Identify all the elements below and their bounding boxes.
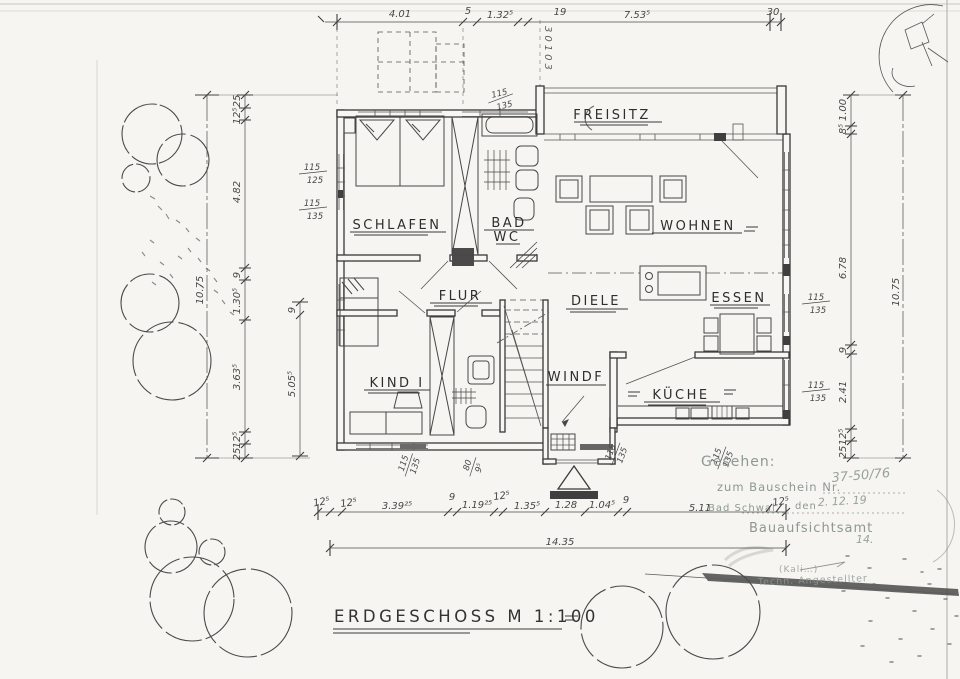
- dim-right-241: 2.41: [838, 381, 849, 403]
- dim-bot-125c: 12⁵: [493, 490, 511, 503]
- dim-top: 4.01 5 1.32⁵ 19 7.53⁵ 30 30103: [318, 6, 785, 73]
- room-label-wc: WC: [494, 230, 521, 245]
- frac-left-upper: 115 125: [299, 163, 327, 186]
- dim-right-1075: 10.75: [891, 278, 902, 307]
- dim-left2-5055: 5.05⁵: [287, 371, 298, 397]
- svg-text:115: 115: [808, 293, 824, 303]
- frac-right-essen: 115 135: [802, 293, 830, 316]
- stamp-den: den: [795, 501, 817, 512]
- svg-text:135: 135: [810, 306, 826, 316]
- shower-room-fixtures: [452, 356, 494, 428]
- frac-windf-door: 80 9⁵: [460, 454, 487, 480]
- dim-right-678: 6.78: [838, 257, 849, 279]
- dim-top-401: 4.01: [389, 9, 411, 20]
- dim-top-30: 30: [767, 7, 780, 18]
- svg-text:115: 115: [304, 199, 320, 209]
- dim-left-25a: 25: [232, 95, 243, 108]
- dim-right-9: 9: [838, 347, 849, 353]
- stamp-date: 2. 12. 19: [817, 493, 867, 509]
- stairs: [497, 300, 549, 432]
- floor-plan: FREISITZ SCHLAFEN BAD WC WOHNEN FLUR DIE…: [337, 20, 790, 499]
- dim-bot-128: 1.28: [555, 500, 577, 511]
- entrance-vestibule: [543, 396, 615, 499]
- stamp-gesehen: Gesehen:: [701, 454, 775, 470]
- room-label-kueche: KÜCHE: [652, 386, 709, 403]
- dim-left-25b: 25: [232, 448, 243, 461]
- pencil-scribble: [725, 548, 773, 566]
- svg-text:30103: 30103: [542, 26, 553, 73]
- dim-left-1305: 1.30⁵: [232, 288, 243, 314]
- edge-arc: [933, 490, 955, 562]
- room-label-kind: KIND I: [369, 376, 424, 391]
- dim-left2-9: 9: [287, 307, 298, 313]
- floor-plan-canvas: FREISITZ SCHLAFEN BAD WC WOHNEN FLUR DIE…: [0, 0, 960, 679]
- fireplace-sideboard: [640, 266, 706, 300]
- dim-bot-1355: 1.35⁵: [514, 501, 540, 512]
- dim-right-25: 25: [838, 446, 849, 459]
- dim-left-chain2: 9 5.05⁵: [287, 298, 308, 460]
- dim-right-85: 8⁵: [838, 124, 849, 134]
- dim-bottom-overall: 14.35: [326, 537, 790, 556]
- shrub-dashes: [142, 196, 234, 315]
- room-label-wohnen: WOHNEN: [660, 219, 736, 234]
- frac-left-lower: 115 135: [299, 199, 327, 222]
- svg-text:135: 135: [810, 394, 826, 404]
- dim-right-chain: 1.00 8⁵ 6.78 9 2.41 12⁵ 25: [838, 91, 859, 462]
- dim-left-3635: 3.63⁵: [232, 364, 243, 390]
- svg-text:125: 125: [307, 176, 323, 186]
- terrace-window-band: [544, 133, 783, 178]
- stamp-bauschein: zum Bauschein Nr.: [717, 480, 841, 494]
- dim-left-1075: 10.75: [195, 276, 206, 305]
- kitchen-counter: [618, 406, 783, 419]
- room-label-diele: DIELE: [571, 294, 621, 309]
- svg-text:115: 115: [808, 381, 824, 391]
- room-label-freisitz: FREISITZ: [573, 108, 651, 123]
- svg-text:135: 135: [307, 212, 323, 222]
- vertical-scribble-note: 30103: [542, 26, 553, 73]
- dim-bot-9b: 9: [623, 495, 629, 506]
- speckles: [842, 556, 958, 662]
- entrance-marker-triangle: [558, 466, 590, 489]
- dim-top-753: 7.53⁵: [624, 10, 650, 21]
- dim-bot-125a: 12⁵: [312, 496, 330, 510]
- room-label-windfang: WINDF: [548, 370, 604, 385]
- svg-text:9⁵: 9⁵: [474, 462, 486, 474]
- stamp-number: 37-50/76: [831, 466, 891, 486]
- dim-left-overall: 10.75: [195, 91, 338, 462]
- dim-bot-1435: 14.35: [546, 537, 575, 548]
- dim-right-125: 12⁵: [838, 429, 849, 446]
- dim-left-9: 9: [232, 272, 243, 278]
- corner-scribble: [879, 5, 948, 92]
- chimney: [452, 248, 474, 266]
- dim-left-125b: 12⁵: [232, 432, 243, 449]
- stamp-amt: Bauaufsichtsamt: [749, 521, 873, 536]
- room-label-essen: ESSEN: [711, 291, 766, 306]
- approval-stamp: Gesehen: zum Bauschein Nr. 37-50/76 Bad …: [701, 454, 906, 588]
- dim-right-100: 1.00: [838, 99, 849, 121]
- room-label-bad: BAD: [491, 216, 526, 231]
- dim-top-5: 5: [465, 6, 471, 17]
- dim-left-482: 4.82: [232, 181, 243, 203]
- dim-bot-125b: 12⁵: [340, 497, 358, 510]
- dimensions: 4.01 5 1.32⁵ 19 7.53⁵ 30 30103 10.75 25 …: [195, 6, 911, 556]
- dim-top-132: 1.32⁵: [487, 10, 513, 21]
- entrance-arrow: [562, 396, 584, 422]
- room-label-schlafen: SCHLAFEN: [353, 218, 442, 233]
- dining-table: [704, 314, 771, 354]
- dim-bot-33925: 3.39²⁵: [382, 501, 412, 512]
- dim-left-chain: 25 12⁵ 4.82 9 1.30⁵ 3.63⁵ 12⁵ 25: [232, 91, 253, 462]
- windows: [337, 110, 790, 450]
- stamp-note: 14.: [856, 533, 874, 546]
- dim-left-125a: 12⁵: [232, 108, 243, 125]
- plan-title-block: ERDGESCHOSS M 1:100: [333, 607, 599, 633]
- dim-bot-11925: 1.19²⁵: [462, 500, 492, 511]
- label-underlines: [350, 122, 770, 405]
- scanned-floor-plan-page: FREISITZ SCHLAFEN BAD WC WOHNEN FLUR DIE…: [0, 0, 960, 679]
- svg-text:80: 80: [462, 459, 475, 472]
- frac-kueche-door-a: 115 135: [602, 439, 631, 469]
- room-label-flur: FLUR: [439, 289, 482, 304]
- wardrobes: [430, 117, 478, 435]
- exterior-walls: [337, 110, 790, 450]
- svg-text:115: 115: [304, 163, 320, 173]
- dim-bot-1045: 1.04⁵: [589, 500, 615, 511]
- child-room-furniture: [340, 278, 422, 434]
- dim-top-19: 19: [554, 7, 567, 18]
- frac-bottom-kind: 115 135: [396, 450, 424, 480]
- plan-title: ERDGESCHOSS M 1:100: [334, 607, 599, 626]
- dim-bot-9a: 9: [449, 492, 455, 503]
- frac-right-kueche: 115 135: [802, 381, 830, 404]
- terrace-door-swing: [722, 141, 758, 178]
- dim-overlay-125: 12⁵: [772, 495, 790, 508]
- dim-right-overall: 10.75: [845, 91, 911, 462]
- stamp-signature-name: (Kali…): [779, 565, 818, 575]
- stamp-ort: Bad Schwal: [708, 503, 776, 514]
- interior-walls: [337, 248, 789, 384]
- bed-schlafen: [344, 116, 444, 186]
- door-swing-kueche: [626, 357, 695, 384]
